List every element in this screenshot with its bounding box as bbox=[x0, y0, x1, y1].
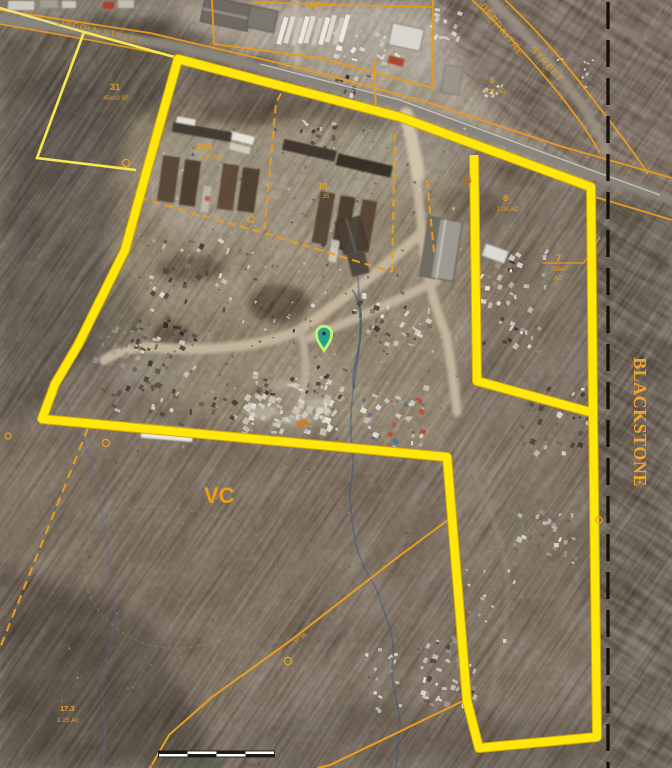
svg-text:7: 7 bbox=[556, 253, 561, 264]
svg-text:1.35 AC: 1.35 AC bbox=[200, 155, 222, 161]
svg-text:BLACKSTONE: BLACKSTONE bbox=[630, 357, 650, 487]
svg-text:AC: AC bbox=[554, 276, 563, 282]
svg-text:1.05 AC: 1.05 AC bbox=[497, 207, 519, 213]
svg-text:VC: VC bbox=[204, 483, 235, 508]
svg-text:VC: VC bbox=[305, 0, 322, 13]
svg-text:10.1: 10.1 bbox=[196, 141, 213, 151]
svg-text:16: 16 bbox=[462, 175, 472, 185]
svg-text:1:8: 1:8 bbox=[150, 763, 159, 768]
svg-text:.35: .35 bbox=[321, 194, 330, 200]
svg-text:6: 6 bbox=[490, 75, 495, 85]
svg-text:45403 SF: 45403 SF bbox=[103, 96, 129, 102]
svg-text:17.3: 17.3 bbox=[60, 704, 75, 713]
svg-text:8: 8 bbox=[503, 193, 508, 203]
svg-text:10: 10 bbox=[318, 181, 328, 191]
svg-text:9.25 Ac: 9.25 Ac bbox=[57, 717, 79, 724]
svg-text:25687: 25687 bbox=[551, 267, 568, 273]
svg-text:1.28 AC: 1.28 AC bbox=[484, 89, 506, 95]
svg-text:31: 31 bbox=[110, 82, 120, 92]
svg-text:2000 ft: 2000 ft bbox=[243, 763, 262, 768]
